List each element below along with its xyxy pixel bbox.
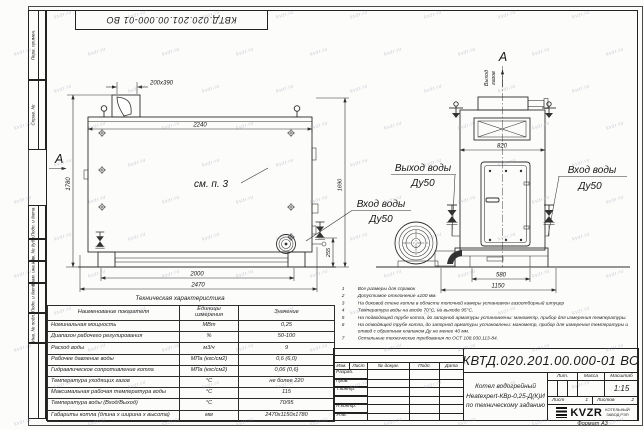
rear-valve-assembly: [312, 222, 326, 246]
dim-span-2000: 2000: [101, 268, 294, 281]
svg-text:Ду50: Ду50: [410, 178, 435, 189]
pipe-stub: [312, 148, 316, 160]
furnace-door: [481, 162, 530, 246]
svg-text:Ду50: Ду50: [368, 214, 393, 225]
svg-text:А: А: [498, 50, 507, 64]
lifting-lug-icon: [292, 106, 302, 117]
svg-text:580: 580: [496, 273, 507, 279]
callout-water-inlet-front: Вход воды Ду50: [548, 165, 627, 236]
inspection-hatch: [474, 118, 530, 140]
base-frame: [455, 248, 548, 267]
section-mark-a-side: А: [49, 152, 66, 169]
svg-text:Вход воды: Вход воды: [568, 165, 617, 176]
flue-collar: [478, 97, 528, 110]
flue-duct-stub: [112, 95, 140, 117]
support-leg: [288, 252, 305, 267]
dim-length-2470: 2470: [80, 247, 317, 292]
dim-stub-255: 255: [318, 238, 337, 267]
dim-width-2240: 2240: [88, 117, 312, 133]
pipe-stub: [312, 204, 318, 213]
burner-flange: [277, 235, 296, 254]
svg-text:Вход воды: Вход воды: [357, 199, 406, 210]
callouts: Выход воды Ду50 Вход воды Ду50 Вход воды…: [306, 163, 627, 241]
dim-height-1780: 1780: [66, 95, 112, 267]
svg-text:1150: 1150: [492, 284, 506, 290]
svg-text:2240: 2240: [192, 123, 207, 129]
svg-text:А: А: [54, 152, 63, 166]
svg-text:255: 255: [326, 247, 332, 258]
svg-text:Выход: Выход: [484, 70, 490, 86]
svg-text:2000: 2000: [189, 272, 204, 278]
dim-width-820: 820: [460, 144, 545, 151]
dim-duct-200x390: 200х390: [106, 81, 174, 95]
svg-text:200х390: 200х390: [149, 81, 174, 87]
drain-valve: [95, 232, 104, 249]
dim-base-580: 580: [472, 268, 530, 282]
support-leg: [98, 252, 115, 267]
pipe-stub: [84, 170, 88, 179]
svg-text:Выход воды: Выход воды: [395, 163, 452, 174]
drawing-sheet: Перв. примен. Справ. № Подп. и дата Инв.…: [0, 0, 644, 430]
door-handle: [486, 198, 499, 202]
front-view: А Выход газов: [376, 50, 630, 267]
collar-pipe: [528, 101, 544, 107]
svg-text:1690: 1690: [338, 178, 344, 191]
svg-text:Ду50: Ду50: [577, 181, 602, 192]
fan-outlet-elbow: [447, 250, 462, 264]
dim-height-1690: 1690: [316, 98, 349, 267]
boiler-drawing: А см. п. 3 200х390 2240: [0, 0, 644, 430]
svg-text:газов: газов: [491, 71, 497, 85]
base-handle: [487, 257, 503, 261]
front-dimensions: 820 580 1150: [441, 144, 556, 294]
base-pipe: [115, 258, 288, 262]
svg-text:см. п. 3: см. п. 3: [194, 179, 228, 190]
side-view: А см. п. 3: [49, 95, 336, 267]
svg-text:1780: 1780: [66, 177, 72, 191]
section-mark-a-front: А Выход газов: [484, 50, 507, 87]
lifting-lug-icon: [99, 106, 109, 117]
svg-text:2470: 2470: [190, 283, 205, 289]
svg-text:820: 820: [497, 144, 508, 150]
see-note-callout: см. п. 3: [194, 168, 268, 190]
